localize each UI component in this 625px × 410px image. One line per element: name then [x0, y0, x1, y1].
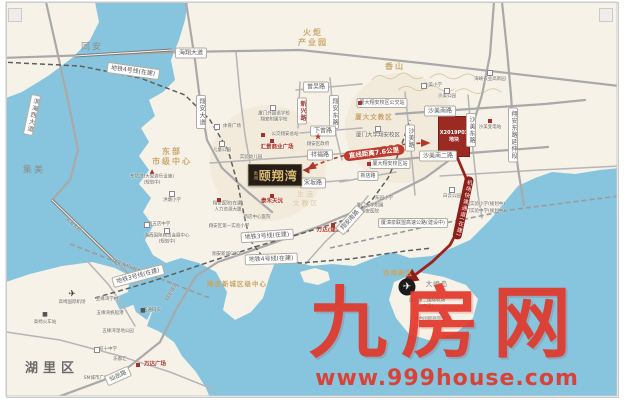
map-label: 洪塘小学: [163, 198, 181, 204]
map-label: 新店中心医院: [244, 215, 271, 221]
map-label: 翔安大桥(规划中): [111, 258, 149, 278]
map-label: 下曾路: [310, 126, 336, 137]
map-label: 仙岳路: [104, 366, 132, 387]
map-label: 白云公园: [443, 194, 461, 200]
project-logo-name: 颐翔湾: [259, 167, 298, 184]
map-labels-layer: 海翔大道地铁4号线(在建)翔安大道滨海西大道同安集美火炬 产业园香山曾吴路新兴路…: [0, 0, 625, 410]
map-label: 湖里区: [25, 361, 79, 377]
map-label: 汇景商业广场: [260, 145, 293, 152]
map-label: 翔安隧道: [165, 282, 180, 303]
map-label: 高崎国际机场: [59, 300, 86, 306]
map-label: 海西国际商贸会展中心 (规划中): [145, 233, 190, 244]
school-icon: [421, 83, 427, 89]
map-label: 厦漳泉联盟高速公路(建设中): [378, 218, 448, 228]
map-label: 五通码头: [143, 308, 161, 314]
map-label: 泰禾天沅: [261, 199, 283, 206]
arrow-left-icon: ◀: [303, 167, 310, 176]
mall-icon: [270, 194, 274, 198]
park-icon: [219, 141, 225, 147]
map-label: 新兴路: [297, 98, 307, 125]
park-icon: [164, 228, 170, 234]
mall-icon: [270, 139, 274, 143]
map-label: 厦门大学翔安校区: [356, 133, 400, 140]
location-map: X2019P03 地块 禹洲 颐翔湾 海翔大道地铁4号线(在建)翔安大道滨海西大…: [0, 0, 625, 410]
map-label: 翔安新城区级中心: [207, 280, 267, 288]
map-label: 翔安区政府: [307, 142, 330, 148]
map-label: 火炬 产业园: [298, 28, 328, 48]
map-label: 沙美路: [405, 125, 415, 152]
map-label: 五缘湾湿地公园: [102, 329, 134, 335]
map-label: 翔安医院(在建) 人力资源大厦: [213, 201, 244, 212]
map-label: 祥福路: [307, 150, 333, 161]
map-label: 翔安南路: [335, 204, 365, 235]
map-label: 滨海西大道: [23, 94, 41, 136]
map-label: 五缘湾学村: [96, 297, 119, 303]
map-label: 直线距离7.6公里: [343, 144, 404, 161]
map-label: 翔安区第一实验小学: [209, 224, 250, 230]
map-label: 宋坂路: [300, 178, 326, 189]
map-label: 地铁3号线(在建): [111, 264, 165, 288]
map-label: 沙美变电站: [479, 125, 502, 131]
power-icon: [488, 119, 492, 123]
map-label: 乐都汇: [113, 357, 127, 363]
map-label: 翔安大道: [196, 95, 206, 129]
map-label: 地铁4号线(在建): [106, 62, 160, 80]
map-label: 沙美公园: [438, 94, 456, 100]
project-logo-brand: 禹洲: [252, 171, 257, 180]
map-label: 曾吴路: [303, 82, 329, 93]
mall-icon: [331, 223, 335, 227]
map-label: 公交翔安总站: [272, 132, 299, 138]
map-label: 厦大翔安校区公交站: [356, 98, 407, 108]
map-label: 海翔大道: [175, 48, 207, 59]
metro-station-icon: [367, 162, 371, 166]
park-icon: [444, 88, 450, 94]
map-label: 翔安东路延伸段: [508, 108, 518, 163]
map-label: 沙美小学: [424, 83, 442, 89]
map-label: 厦大翔安校区站: [369, 159, 410, 169]
attraction-icon: ▲: [150, 169, 155, 175]
bus-icon: [358, 101, 362, 105]
ferry-icon: ■: [140, 308, 146, 314]
map-label: 五缘湾帆船港: [97, 311, 124, 317]
map-label: 东园小学: [375, 196, 393, 202]
map-label: 机场快速通道(在建): [452, 176, 474, 241]
map-label: 新店路: [357, 171, 378, 181]
map-label: SM城市广场: [84, 376, 109, 382]
map-label: 香山: [385, 62, 405, 72]
plane-icon: ✈: [68, 291, 76, 300]
map-label: 翔安新城CBD: [212, 252, 240, 258]
map-label: 大嶝岛: [426, 280, 449, 288]
school-icon: [94, 347, 100, 353]
map-label: 滨海大桥: [63, 216, 82, 234]
map-label: 高崎火车站: [34, 320, 57, 326]
project-logo: 禹洲 颐翔湾: [248, 164, 302, 186]
map-label: 厦门第二国际机场 (在建): [409, 298, 445, 309]
map-label: 体育广场: [223, 124, 241, 130]
map-label: 地铁3号线(在建): [240, 229, 293, 244]
bus-icon: [261, 133, 265, 137]
map-label: 对台国际商贸区: [414, 317, 446, 323]
map-label: 海峡农业高新园: [474, 77, 506, 83]
map-label: 厦门实验小学(规划中): [461, 202, 505, 208]
corner-stamp: [8, 8, 22, 22]
map-label: 沙美南二路: [419, 151, 457, 162]
map-label: 沙美东路: [466, 113, 476, 147]
map-label: 实验幼儿园: [240, 155, 263, 161]
map-label: 厦门大学附属 翔安医院: [357, 203, 384, 214]
map-label: 东部 市级中心: [152, 147, 192, 167]
corner-stamp: [599, 8, 613, 22]
map-label: 万达(建设中): [317, 228, 350, 235]
train-icon: ■: [42, 312, 48, 318]
park-icon: [214, 124, 220, 130]
map-label: 翔安东路: [329, 95, 339, 129]
new-airport-icon: ✈: [399, 279, 416, 296]
hospital-icon: [217, 198, 221, 202]
map-label: 万达广场: [144, 362, 166, 369]
school-icon: [270, 105, 276, 111]
map-label: 厦门外国语学校 翔安附属学校: [258, 111, 290, 122]
school-icon: [169, 191, 175, 197]
map-label: 同安: [81, 42, 103, 53]
park-icon: [449, 187, 455, 193]
map-label: 儿童公园: [213, 148, 231, 154]
gov-star-icon: ★: [314, 134, 322, 143]
map-label: 双十中学: [99, 347, 117, 353]
park-icon: [487, 70, 493, 76]
map-label: 生活 文教区: [293, 190, 320, 208]
map-label: 厦门实验中学(规划中): [461, 209, 505, 215]
school-icon: [375, 126, 381, 132]
map-label: 地铁4号线(在建): [245, 253, 298, 266]
map-label: 东坑湾(大型游乐设施) (规划中): [130, 174, 174, 185]
map-label: 厦大文教区: [355, 113, 393, 121]
map-label: 刘五店中学: [148, 222, 171, 228]
mall-icon: [136, 363, 140, 367]
school-icon: [144, 222, 150, 228]
map-label: 沙美南路: [424, 106, 456, 117]
map-label: 空港新区: [383, 269, 413, 277]
map-label: 集美: [23, 165, 45, 176]
